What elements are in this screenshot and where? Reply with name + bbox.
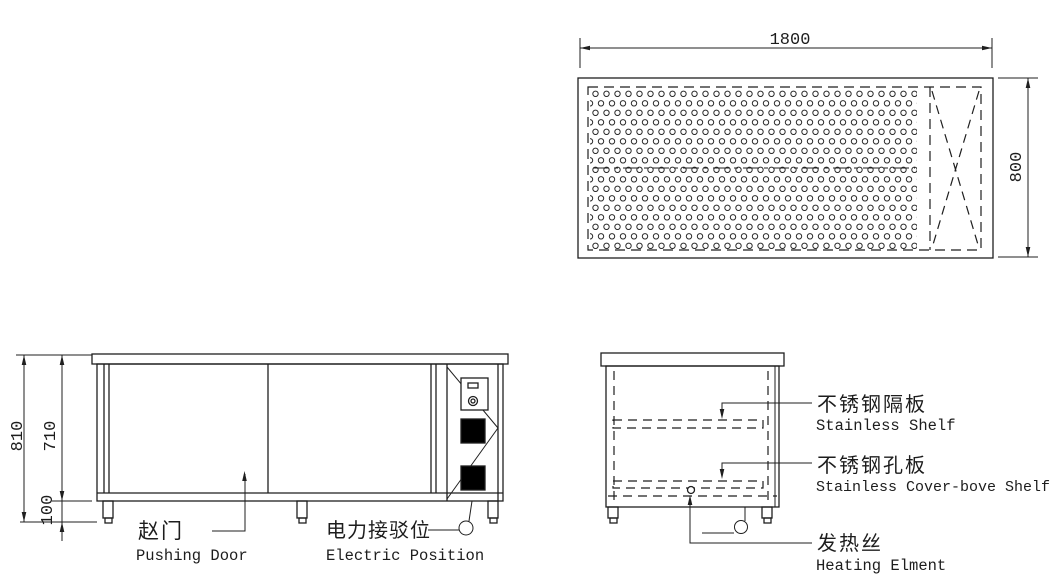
front-foot-right — [490, 518, 497, 523]
side-body — [606, 366, 779, 507]
heating-label-zh: 发热丝 — [817, 531, 883, 555]
side-countertop — [601, 353, 784, 366]
electric-callout: 电力接驳位 Electric Position — [326, 501, 484, 565]
door-leader — [212, 474, 245, 531]
door-label-en: Pushing Door — [136, 547, 248, 565]
dim-body-arrow-top — [60, 355, 65, 365]
front-leg-right — [488, 501, 498, 518]
power-cord-circle-side — [735, 521, 748, 534]
front-body — [97, 364, 503, 501]
side-leg-right — [762, 507, 772, 518]
side-foot-left — [610, 518, 617, 523]
electric-label-en: Electric Position — [326, 547, 484, 565]
power-cord-line-front — [469, 501, 472, 521]
dim-total-height-value: 810 — [9, 421, 28, 452]
dim-body-height-value: 710 — [42, 421, 61, 452]
dim-depth-arrow-top — [1026, 78, 1031, 88]
perforated-shelf-dashed — [613, 481, 763, 488]
shelf-leader — [722, 403, 812, 414]
front-foot-center — [299, 518, 306, 523]
perforated-label-zh: 不锈钢孔板 — [817, 453, 927, 477]
dim-width-value: 1800 — [770, 31, 811, 50]
dim-body-arrow-bottom — [60, 491, 65, 501]
dim-depth-value: 800 — [1008, 152, 1027, 183]
side-view: 不锈钢隔板 Stainless Shelf 不锈钢孔板 Stainless Co… — [601, 353, 1050, 575]
front-leg-left — [103, 501, 113, 518]
power-cord-circle-front — [459, 521, 473, 535]
shelf-dashed — [613, 420, 763, 428]
dim-width: 1800 — [580, 31, 992, 68]
shelf-label-zh: 不锈钢隔板 — [817, 392, 927, 416]
perforated-label-en: Stainless Cover-bove Shelf — [816, 479, 1050, 496]
front-countertop — [92, 354, 508, 364]
dim-leg-height-value: 100 — [39, 495, 58, 526]
door-callout: 赵门 Pushing Door — [136, 471, 248, 565]
heating-label-en: Heating Elment — [816, 557, 946, 575]
side-foot-right — [764, 518, 771, 523]
dim-total-arrow-bottom — [22, 512, 27, 522]
perforated-shelf-leader-arrow — [720, 469, 725, 479]
side-leg-left — [608, 507, 618, 518]
door-leader-arrow — [242, 471, 247, 481]
heating-element-circle — [688, 487, 695, 494]
electric-label-zh: 电力接驳位 — [326, 518, 431, 542]
door-label-zh: 赵门 — [138, 519, 184, 543]
dim-width-arrow-right — [982, 46, 992, 51]
dim-total-arrow-top — [22, 355, 27, 365]
dim-depth-arrow-bottom — [1026, 247, 1031, 257]
perforated-area — [590, 89, 917, 249]
dim-width-arrow-left — [580, 46, 590, 51]
front-foot-left — [105, 518, 112, 523]
dim-depth: 800 — [998, 78, 1038, 257]
dim-leg-arrow-up — [60, 522, 65, 532]
shelf-leader-arrow — [720, 409, 725, 419]
switch-black-2[interactable] — [461, 466, 485, 490]
drawing-svg: 1800 800 — [0, 0, 1053, 586]
top-view: 1800 800 — [578, 31, 1038, 258]
front-view: 810 710 100 赵门 Pushing Door 电力接驳位 Electr… — [9, 354, 508, 565]
shelf-label-en: Stainless Shelf — [816, 417, 956, 435]
technical-drawing-page: 1800 800 — [0, 0, 1053, 586]
switch-black-1[interactable] — [461, 419, 485, 443]
perforated-shelf-leader — [722, 463, 812, 474]
front-leg-center — [297, 501, 307, 518]
dim-heights: 810 710 100 — [9, 355, 97, 541]
perforated-shelf-callout: 不锈钢孔板 Stainless Cover-bove Shelf — [720, 453, 1050, 496]
